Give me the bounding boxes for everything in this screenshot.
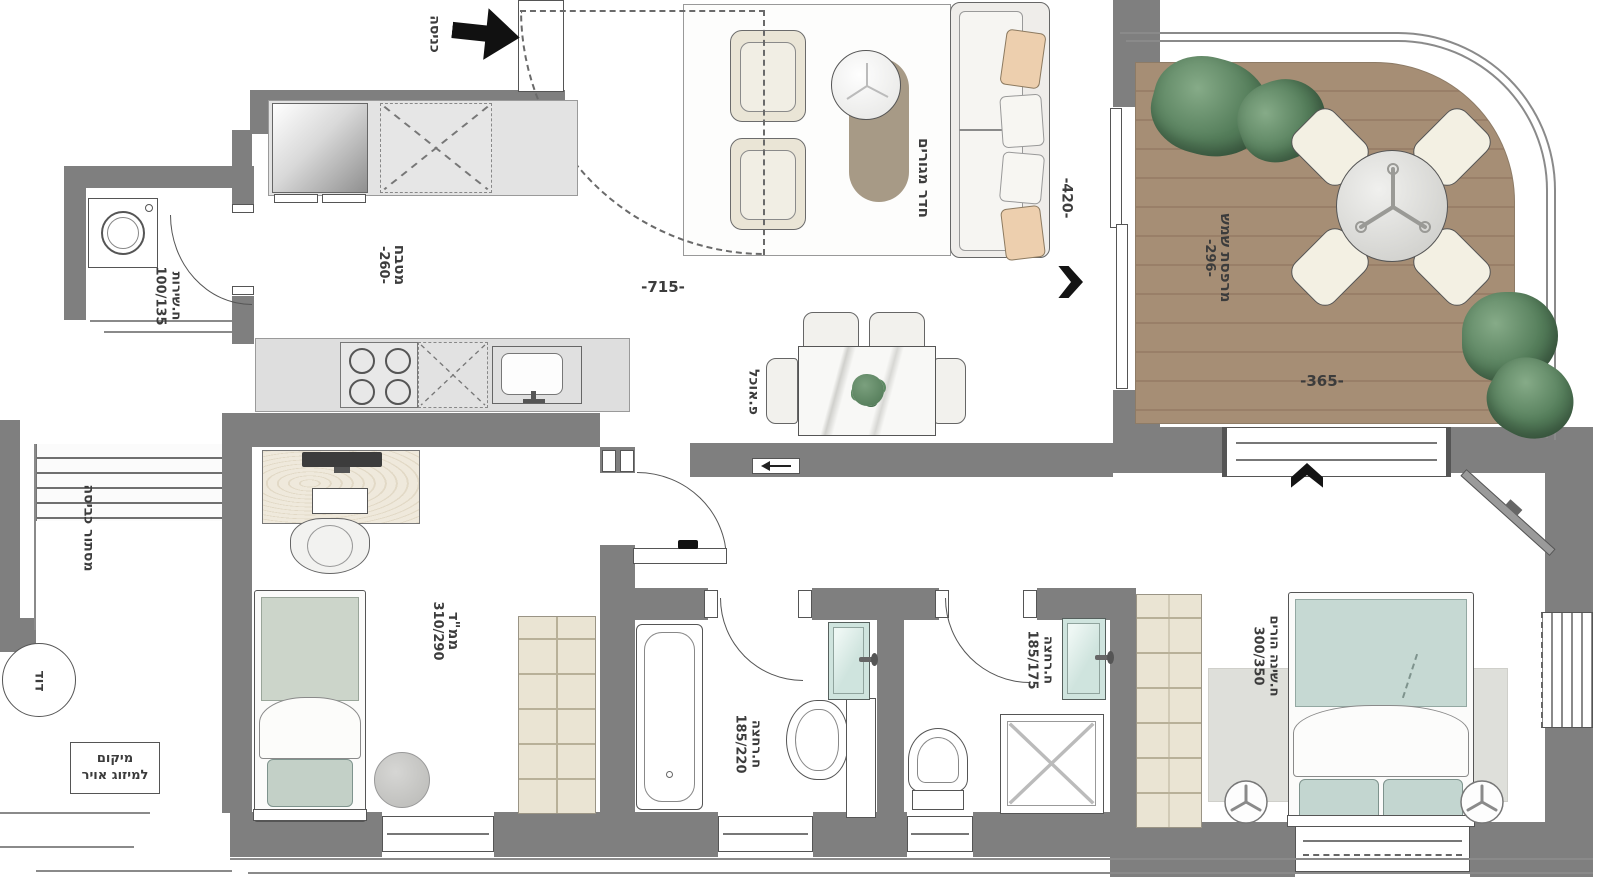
ac-label-line1: מיקום xyxy=(97,751,133,768)
shower-inner xyxy=(1007,721,1096,806)
fridge-handle xyxy=(322,194,366,203)
washer-knob xyxy=(145,204,153,212)
room-label-balcony: מרפסת שמש -296- xyxy=(1201,213,1235,302)
wall xyxy=(494,812,718,857)
shower-x-icon xyxy=(1008,722,1095,805)
floor-plan: מיקום למיזוג אויר xyxy=(0,0,1600,888)
service-size: 100/135 xyxy=(152,266,168,325)
shower xyxy=(1000,714,1104,814)
room-label-dining: פ.אוכל xyxy=(745,369,762,415)
wall xyxy=(1545,473,1593,614)
toilet xyxy=(908,728,968,792)
toilet-rim xyxy=(795,709,839,771)
window-bath2 xyxy=(907,816,973,852)
wall xyxy=(1037,588,1112,620)
wall xyxy=(0,420,20,625)
room-label-bath2: ח.רחצה 185/175 xyxy=(1024,630,1055,689)
safe-room-size: 310/290 xyxy=(429,601,445,660)
safe-room-label: ממ"ד xyxy=(445,601,463,660)
window-master-bottom xyxy=(1295,826,1470,872)
window-bath1 xyxy=(718,816,813,852)
wall xyxy=(877,612,904,814)
burner xyxy=(385,379,411,405)
door-jamb xyxy=(620,450,634,472)
room-label-entrance: כניסה xyxy=(426,15,443,53)
single-bed xyxy=(254,590,366,822)
wardrobe xyxy=(1136,594,1202,828)
monitor-icon xyxy=(302,452,382,467)
slide-direction-arrow-icon xyxy=(1053,266,1083,298)
office-chair-seat xyxy=(307,525,353,567)
cabinet-x-icon xyxy=(419,343,487,407)
bed-bench xyxy=(1287,815,1475,827)
table-spokes-icon xyxy=(1337,151,1449,263)
wall xyxy=(1545,726,1593,830)
kitchen-sink xyxy=(492,346,582,404)
faucet-icon xyxy=(871,653,878,666)
sofa xyxy=(950,2,1050,258)
ac-label-line2: למיזוג אויר xyxy=(82,768,149,785)
kitchen-upper-cabinet xyxy=(380,103,492,193)
bath1-label: ח.רחצה xyxy=(748,714,764,773)
sill-line xyxy=(104,331,232,333)
door-jamb xyxy=(232,204,254,213)
tv-mount xyxy=(1505,499,1522,516)
bathtub-drain xyxy=(666,771,673,778)
wall xyxy=(230,413,600,447)
balcony-table xyxy=(1336,150,1448,262)
washer-drum-inner xyxy=(107,217,139,249)
toilet-rim xyxy=(917,737,959,783)
coffee-table xyxy=(831,50,901,120)
sliding-door-panel xyxy=(1110,108,1122,228)
sill-line xyxy=(248,872,1593,874)
room-label-master: ח.שינה הורים 300/350 xyxy=(1250,615,1281,696)
safe-room-door-leaf xyxy=(633,548,727,564)
service-label: ח.שירות xyxy=(168,266,184,325)
wall xyxy=(600,545,635,815)
laundry-label: מסתור כביסה xyxy=(80,484,97,571)
bed-duvet xyxy=(1293,705,1469,777)
master-label: ח.שינה הורים xyxy=(1266,615,1282,696)
room-label-laundry: מסתור כביסה xyxy=(80,484,97,571)
wall xyxy=(812,588,939,620)
door-jamb xyxy=(602,450,616,472)
wall xyxy=(633,588,708,620)
entrance-label: כניסה xyxy=(426,15,443,53)
wall xyxy=(973,812,1110,857)
sofa-cushion xyxy=(1000,205,1046,261)
kitchen-dim: -260- xyxy=(375,245,391,286)
double-bed xyxy=(1288,592,1474,826)
kitchen-lower-cabinet xyxy=(418,342,488,408)
bed-blanket xyxy=(261,597,359,701)
room-label-safe-room: ממ"ד 310/290 xyxy=(429,601,463,660)
bath1-size: 185/220 xyxy=(732,714,748,773)
dining-chair xyxy=(766,358,798,424)
entrance-arrow-icon xyxy=(449,3,522,64)
sink-basin xyxy=(501,353,563,395)
burner xyxy=(349,379,375,405)
toilet-cistern xyxy=(912,790,964,810)
dimension-label-living-width: -715- xyxy=(641,278,685,296)
toilet xyxy=(786,700,848,780)
niche-arrow-head-icon xyxy=(761,461,770,471)
living-label: חדר מגורים xyxy=(915,138,933,218)
room-label-bath1: ח.רחצה 185/220 xyxy=(732,714,763,773)
bed-blanket xyxy=(1295,599,1467,707)
kitchen-label: מטבח xyxy=(391,245,409,286)
ledge-line xyxy=(36,870,232,872)
sofa-cushion xyxy=(999,94,1045,149)
bathtub xyxy=(636,624,703,810)
burner xyxy=(349,348,375,374)
dimension-label-balcony-width: -365- xyxy=(1300,372,1344,390)
bathroom-sink xyxy=(828,622,870,700)
window-safe-room xyxy=(382,816,494,852)
hall-niche xyxy=(752,458,800,474)
sofa-cushion xyxy=(999,28,1046,89)
bath2-door-swing-arc xyxy=(945,598,1030,683)
fridge-handle xyxy=(274,194,318,203)
monitor-stand xyxy=(334,467,350,473)
ac-location-box: מיקום למיזוג אויר xyxy=(70,742,160,794)
boiler-label: דוד xyxy=(31,670,48,691)
sliding-door-panel xyxy=(1116,224,1128,389)
bed-pillow xyxy=(267,759,353,807)
bed-bench xyxy=(253,809,367,821)
bath2-label: ח.רחצה xyxy=(1040,630,1056,689)
bed-duvet xyxy=(259,697,361,759)
wall xyxy=(1110,822,1295,877)
room-label-service: ח.שירות 100/135 xyxy=(152,266,183,325)
wall xyxy=(1470,822,1593,877)
wardrobe xyxy=(518,616,596,814)
cabinet-x-icon xyxy=(381,104,491,192)
sofa-cushion xyxy=(999,151,1045,204)
door-jamb xyxy=(704,590,718,618)
window-master-side-louver xyxy=(1541,612,1593,728)
ledge-line xyxy=(0,812,150,814)
dining-label: פ.אוכל xyxy=(745,369,762,415)
wall xyxy=(64,166,254,188)
bath2-size: 185/175 xyxy=(1024,630,1040,689)
bedside-lamp-icon xyxy=(1222,778,1270,826)
balcony-depth-dim: -296- xyxy=(1201,213,1217,302)
washing-machine xyxy=(88,198,158,268)
faucet-icon xyxy=(1107,651,1114,664)
ledge-line xyxy=(0,846,134,848)
door-handle-icon xyxy=(678,540,698,549)
bath1-door-swing-arc xyxy=(720,598,803,681)
balcony-label: מרפסת שמש xyxy=(1217,213,1235,302)
room-label-kitchen: מטבח -260- xyxy=(375,245,409,286)
room-label-boiler: דוד xyxy=(31,670,48,691)
tv xyxy=(1460,469,1555,556)
keyboard xyxy=(312,488,368,514)
laundry-edge-line xyxy=(34,444,36,630)
faucet-icon xyxy=(523,399,545,403)
office-chair xyxy=(290,518,370,574)
bathroom-sink xyxy=(1062,618,1106,700)
burner xyxy=(385,348,411,374)
bedside-lamp-icon xyxy=(1458,778,1506,826)
wall xyxy=(222,413,252,813)
room-label-living: חדר מגורים xyxy=(915,138,933,218)
table-sparkle-icon xyxy=(832,51,902,121)
niche-arrow-line xyxy=(769,465,791,467)
wall xyxy=(232,130,252,170)
table-plant xyxy=(852,374,884,406)
wall xyxy=(64,188,86,320)
stove xyxy=(340,342,418,408)
laundry-louver-screen xyxy=(36,444,222,521)
pouf xyxy=(374,752,430,808)
wall xyxy=(813,812,907,857)
wall xyxy=(690,443,725,477)
sill-line xyxy=(230,858,1593,860)
dimension-label-living-depth: -420- xyxy=(1058,178,1075,219)
wall xyxy=(1110,588,1136,828)
dining-chair xyxy=(934,358,966,424)
master-size: 300/350 xyxy=(1250,615,1266,696)
toilet-cistern xyxy=(846,698,876,818)
fridge xyxy=(272,103,368,193)
